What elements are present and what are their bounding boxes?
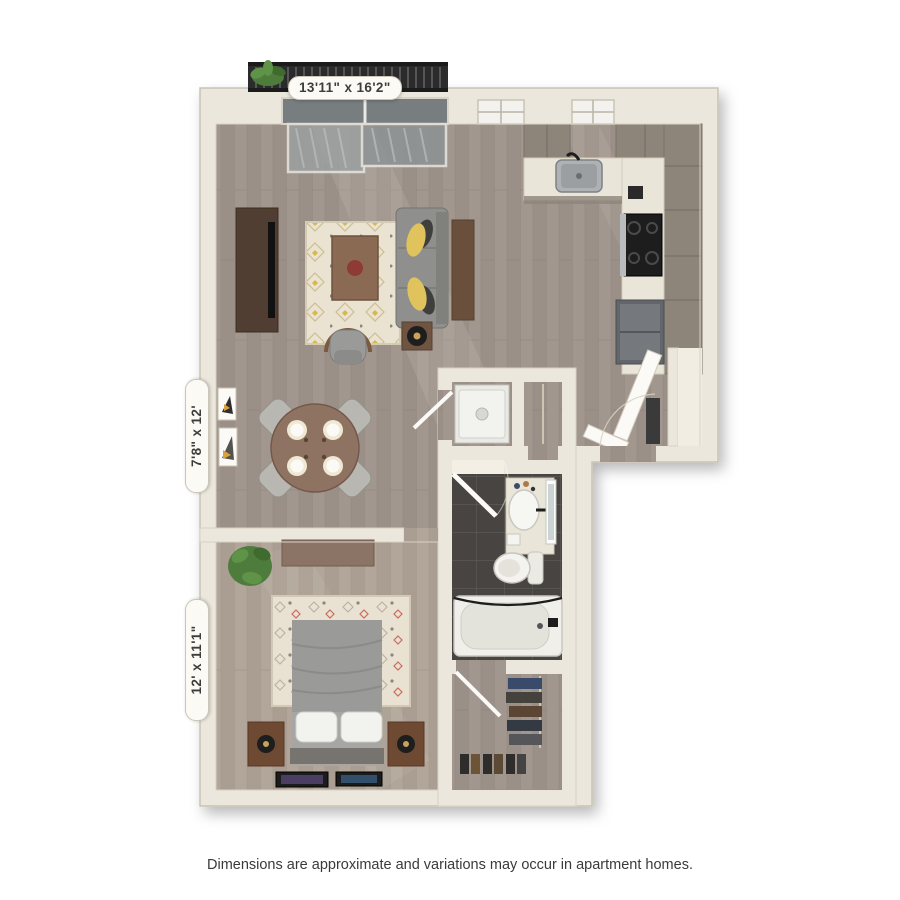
closet-door-opening <box>456 660 506 674</box>
dresser-shelf <box>282 540 374 566</box>
tv-icon <box>268 222 275 318</box>
dimension-label-dining: 7'8" x 12' <box>185 379 209 493</box>
pillow <box>296 712 337 742</box>
accent-chair <box>326 330 370 364</box>
toilet <box>494 552 543 584</box>
bathroom-door-opening <box>452 460 504 474</box>
kitchen-sink <box>556 154 602 192</box>
patio-sliding-door <box>282 98 448 172</box>
bath-closet-block <box>414 368 629 806</box>
drain-icon <box>537 623 543 629</box>
bathtub <box>454 596 562 656</box>
tub-faucet-icon <box>548 618 558 627</box>
dimension-label-living-kitchen: 13'11" x 16'2" <box>288 76 402 100</box>
coffee-maker-icon <box>628 186 643 199</box>
centerpiece <box>347 260 363 276</box>
toilet-paper-holder <box>507 534 520 545</box>
console-table <box>452 220 474 320</box>
wall-cabinet-run <box>664 124 702 374</box>
washer-dryer <box>455 385 509 443</box>
entry-closet-floor <box>678 348 702 446</box>
bathroom-vanity <box>506 478 556 554</box>
dining-table <box>271 404 359 492</box>
dining-set <box>255 395 374 500</box>
mirror-glass <box>548 484 554 540</box>
vanity-accessory <box>514 483 520 489</box>
hall-closet-opening <box>528 446 558 460</box>
disclaimer-caption: Dimensions are approximate and variation… <box>0 857 900 873</box>
floorplan-canvas: 13'11" x 16'2" 7'8" x 12' 12' x 11'1" Di… <box>0 0 900 900</box>
pillow <box>341 712 382 742</box>
dimension-label-bedroom: 12' x 11'1" <box>185 599 209 721</box>
vanity-accessory <box>531 487 535 491</box>
counter-edge <box>524 196 622 204</box>
door-mat <box>646 398 660 444</box>
sink <box>509 490 539 530</box>
nightstand-right <box>388 722 424 766</box>
entry-closet-wall <box>668 348 678 446</box>
vanity-accessory <box>523 481 529 487</box>
sofa <box>396 208 448 328</box>
oven-handle <box>620 214 626 276</box>
entry-opening <box>600 446 656 462</box>
side-table-lamp <box>402 322 432 350</box>
stove <box>620 214 662 276</box>
bed <box>290 620 384 766</box>
floorplan-drawing <box>0 0 900 900</box>
tv-console <box>236 208 278 332</box>
hanging-clothes <box>506 676 542 748</box>
headboard <box>290 748 384 764</box>
bedroom-door-opening <box>404 528 438 542</box>
coffee-table <box>332 236 378 300</box>
nightstand-left <box>248 722 284 766</box>
